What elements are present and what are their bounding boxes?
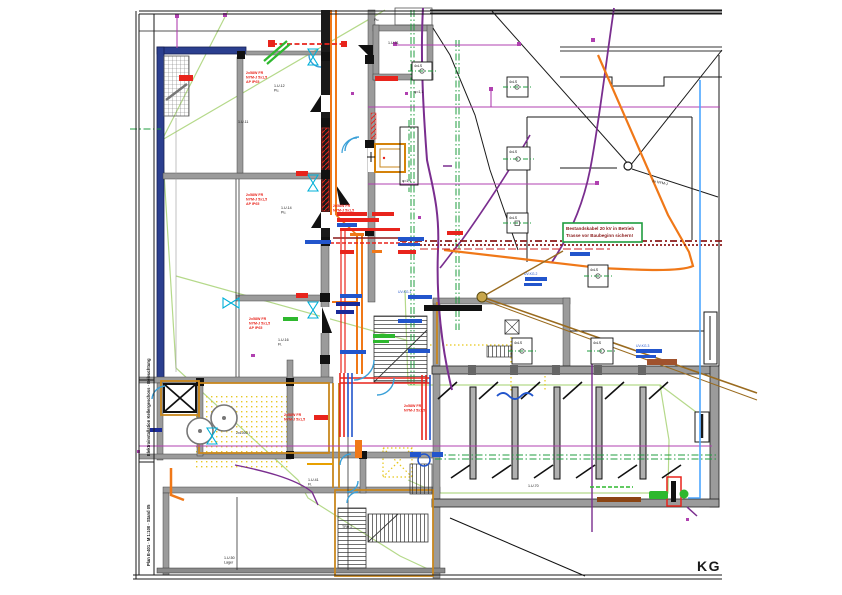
- room-label: 1.U.70: [528, 484, 539, 488]
- luminaire-symbol: 4xLS: [508, 338, 536, 364]
- svg-text:2x58W FR: 2x58W FR: [249, 317, 267, 321]
- fire-wall-hatch: [322, 128, 329, 211]
- svg-text:φ=1,1: φ=1,1: [402, 179, 411, 183]
- junction-node: [624, 162, 632, 170]
- room-label: TRH 2: [342, 525, 352, 529]
- cable-tray-bar: [424, 305, 482, 311]
- tank-label: 2x1000 l: [236, 431, 250, 435]
- room-label: 1.U.50: [224, 556, 235, 560]
- svg-text:2x58W FR: 2x58W FR: [246, 71, 264, 75]
- room-label: Pu.: [274, 89, 279, 93]
- room-label: 1.U.14: [281, 206, 292, 210]
- room-label: Fl.: [278, 343, 282, 347]
- cad-sheet: Bestandskabel 20 kV in Betrieb Trasse vo…: [0, 0, 842, 595]
- note-line-1: Bestandskabel 20 kV in Betrieb: [566, 226, 634, 231]
- svg-text:AP IP65: AP IP65: [249, 326, 262, 330]
- green-marker-bar: [649, 491, 668, 499]
- room-label: Lager: [224, 561, 234, 565]
- hall-right-wall: [710, 366, 719, 507]
- luminaire-symbol: 4xLS: [587, 338, 617, 364]
- room-label: Fl.: [308, 483, 312, 487]
- room-label: Pu.: [374, 18, 379, 22]
- svg-text:NYM-J 5x1,5: NYM-J 5x1,5: [284, 418, 305, 422]
- svg-text:AP IP65: AP IP65: [246, 202, 259, 206]
- svg-text:NYM-J 5x1,5: NYM-J 5x1,5: [246, 76, 267, 80]
- legend-text-2: Plan E-401 · M 1:100 · Stand 05: [146, 504, 151, 566]
- svg-text:2x58W FR: 2x58W FR: [404, 404, 422, 408]
- svg-text:4xLS: 4xLS: [593, 341, 602, 345]
- room-label: Pu.: [281, 211, 286, 215]
- legend-text-1: Elektroinstallation Kellergeschoss · Bel…: [146, 358, 151, 456]
- room-label: 1.U.31: [388, 41, 399, 45]
- calc-label: φ=1,1: [414, 90, 423, 94]
- panel-label: UV-KG.2: [524, 272, 537, 276]
- blue-wall-left: [157, 47, 164, 378]
- svg-text:4xLS: 4xLS: [514, 341, 523, 345]
- luminaire-symbol: 4xLS: [408, 62, 436, 80]
- luminaire-symbol: 4xLS: [584, 265, 612, 287]
- svg-text:4xLS: 4xLS: [509, 80, 518, 84]
- cable-node: [477, 292, 487, 302]
- svg-text:4xLS: 4xLS: [509, 150, 518, 154]
- svg-text:4xLS: 4xLS: [509, 216, 518, 220]
- svg-text:4xLS: 4xLS: [414, 64, 423, 68]
- svg-text:4xLS: 4xLS: [590, 268, 599, 272]
- green-marker-dot: [680, 490, 689, 499]
- floor-level-label: KG: [697, 558, 721, 574]
- existing-cable-note-box: Bestandskabel 20 kV in Betrieb Trasse vo…: [563, 223, 642, 242]
- floorplan-canvas: Bestandskabel 20 kV in Betrieb Trasse vo…: [0, 0, 842, 595]
- svg-text:2x58W FR: 2x58W FR: [284, 413, 302, 417]
- note-line-2: Trasse vor Baubeginn sichern!: [566, 233, 634, 238]
- panel-label: UV-KG.1: [398, 290, 411, 294]
- room-label: 1.U.12: [274, 84, 285, 88]
- svg-text:2x58W FR: 2x58W FR: [246, 193, 264, 197]
- svg-text:NYM-J 5x1,5: NYM-J 5x1,5: [404, 409, 425, 413]
- room-label: 1.U.16: [278, 338, 289, 342]
- luminaire-symbol: 4xLS: [503, 77, 532, 97]
- luminaire-symbol: 4xLS: [503, 147, 534, 170]
- blue-wall-top: [157, 47, 246, 54]
- svg-text:NYM-J 5x1,5: NYM-J 5x1,5: [249, 322, 270, 326]
- svg-text:NYM-J 5x1,5: NYM-J 5x1,5: [246, 198, 267, 202]
- panel-label: UV-KG.3: [636, 344, 649, 348]
- stair-bottom-b: [368, 514, 428, 542]
- stair-bottom-a: [338, 508, 366, 568]
- svg-text:2x58W FR: 2x58W FR: [333, 204, 351, 208]
- room-label: 1.U.11: [238, 120, 248, 124]
- luminaire-symbol: 4xLS: [503, 213, 532, 233]
- room-label: 1.U.41: [308, 478, 319, 482]
- svg-text:NYM-J 5x1,5: NYM-J 5x1,5: [333, 209, 354, 213]
- svg-text:AP IP65: AP IP65: [246, 80, 259, 84]
